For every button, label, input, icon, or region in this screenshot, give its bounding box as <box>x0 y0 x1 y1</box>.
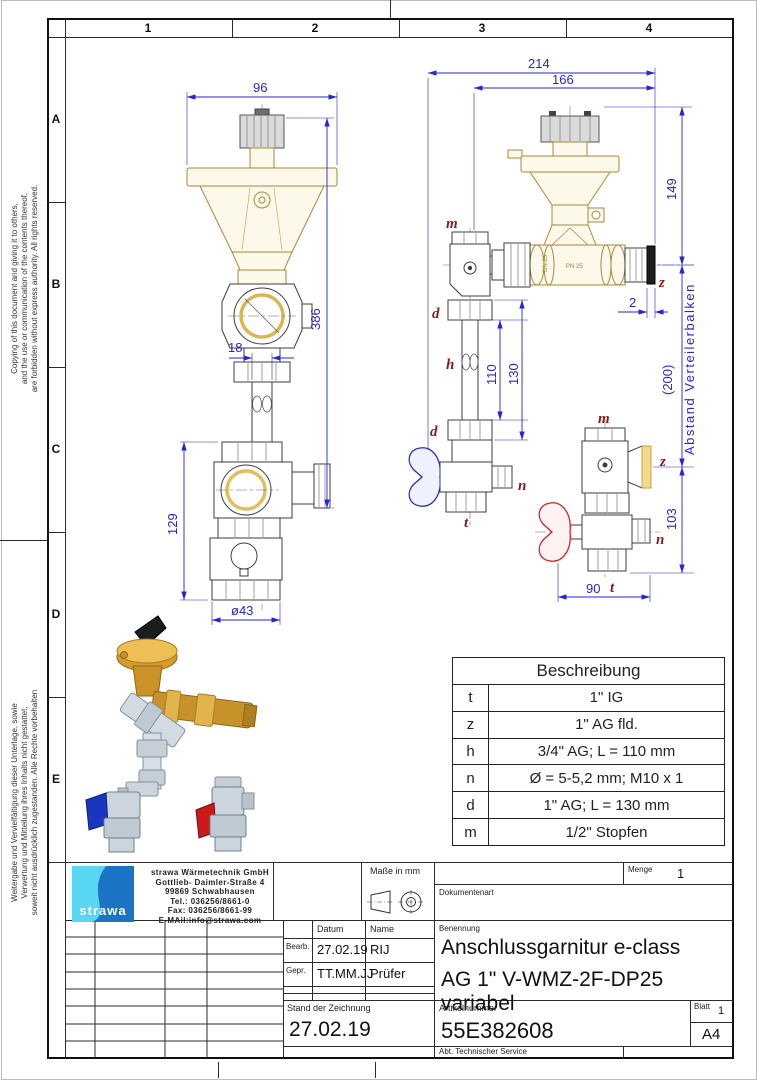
abt-value: Abt. Technischer Service <box>439 1047 527 1056</box>
table-row: d 1" AG; L = 130 mm <box>453 791 724 818</box>
name-header: Name <box>370 924 394 934</box>
table-row: z 1" AG fld. <box>453 711 724 738</box>
table-row: m 1/2" Stopfen <box>453 818 724 845</box>
header-divider <box>566 18 567 37</box>
units-label: Maße in mm <box>370 866 420 876</box>
bearb-date: 27.02.19 <box>317 942 368 957</box>
company-name: strawa Wärmetechnik GmbH <box>141 868 279 878</box>
gepr-label: Gepr. <box>286 966 306 975</box>
logo-text: strawa <box>79 903 126 918</box>
header-divider <box>399 18 400 37</box>
row-key: d <box>453 792 489 818</box>
strawa-logo: strawa <box>72 866 134 922</box>
blatt-value: 1 <box>718 1005 724 1017</box>
copyright-note-en: Copying of this document and giving it t… <box>8 37 42 540</box>
copyright-line: Weitergabe und Vervielfältigung dieser U… <box>10 545 20 1060</box>
table-row: t 1" IG <box>453 684 724 711</box>
row-letter: C <box>52 442 61 456</box>
drawing-sheet: 1 2 3 4 A B C D E Copying of this docume… <box>0 0 757 1080</box>
company-tel: Tel.: 036256/8661-0 <box>141 897 279 907</box>
row-divider <box>47 202 65 203</box>
format-value: A4 <box>702 1026 720 1043</box>
company-address: strawa Wärmetechnik GmbH Gottlieb- Daiml… <box>141 868 279 926</box>
row-divider <box>47 532 65 533</box>
header-bottom-line <box>47 37 733 38</box>
row-key: n <box>453 765 489 791</box>
row-key: h <box>453 739 489 765</box>
row-value: 1/2" Stopfen <box>489 819 724 845</box>
stand-value: 27.02.19 <box>289 1018 371 1042</box>
company-fax: Fax: 036256/8661-99 <box>141 906 279 916</box>
copyright-line: Copying of this document and giving it t… <box>10 37 20 540</box>
title-block: strawa strawa Wärmetechnik GmbH Gottlieb… <box>65 862 733 1058</box>
row-letter: B <box>52 277 61 291</box>
frame-top <box>47 18 733 20</box>
copyright-line: are forbidden without express authority.… <box>30 37 40 540</box>
row-value: 1" AG; L = 130 mm <box>489 792 724 818</box>
row-value: Ø = 5-5,2 mm; M10 x 1 <box>489 765 724 791</box>
column-number: 4 <box>646 21 653 35</box>
company-email: E-MAil:info@strawa.com <box>141 916 279 926</box>
bottom-fold-mark <box>375 1062 376 1078</box>
column-number: 1 <box>145 21 152 35</box>
copyright-line: and the use or communication of the cont… <box>20 37 30 540</box>
menge-label: Menge <box>628 865 652 874</box>
row-key: m <box>453 819 489 845</box>
column-number: 2 <box>312 21 319 35</box>
bottom-fold-mark <box>218 1062 219 1078</box>
row-key: z <box>453 712 489 738</box>
company-street: Gottlieb- Daimler-Straße 4 <box>141 878 279 888</box>
row-value: 1" IG <box>489 685 724 711</box>
blatt-label: Blatt <box>694 1002 710 1011</box>
revision-grid <box>65 920 283 1058</box>
column-number: 3 <box>479 21 486 35</box>
bearb-name: RIJ <box>370 942 390 957</box>
datum-header: Datum <box>317 924 344 934</box>
benennung-line1: Anschlussgarnitur e-class <box>441 936 680 960</box>
gepr-date: TT.MM.JJ <box>317 966 373 981</box>
left-center-mark <box>0 540 47 541</box>
artikel-value: 55E382608 <box>441 1018 554 1044</box>
company-city: 99869 Schwabhausen <box>141 887 279 897</box>
row-letter: E <box>52 772 60 786</box>
dokumentenart-label: Dokumentenart <box>439 888 494 897</box>
frame-left <box>47 18 49 1059</box>
top-center-mark <box>390 0 391 18</box>
copyright-line: soweit nicht ausdrücklich zugestanden. A… <box>30 545 40 1060</box>
stand-label: Stand der Zeichnung <box>287 1003 371 1013</box>
copyright-line: Verwertung und Mitteilung ihres Inhalts … <box>20 545 30 1060</box>
table-row: h 3/4" AG; L = 110 mm <box>453 738 724 765</box>
row-divider <box>47 367 65 368</box>
copyright-note-de: Weitergabe und Vervielfältigung dieser U… <box>8 545 42 1060</box>
row-value: 3/4" AG; L = 110 mm <box>489 739 724 765</box>
row-letter: A <box>52 112 61 126</box>
row-value: 1" AG fld. <box>489 712 724 738</box>
row-letter: D <box>52 607 61 621</box>
description-table: Beschreibung t 1" IG z 1" AG fld. h 3/4"… <box>452 657 725 846</box>
menge-value: 1 <box>677 866 684 881</box>
bearb-label: Bearb. <box>286 942 310 951</box>
row-divider <box>47 697 65 698</box>
artikel-label: Artikelnummer <box>439 1003 497 1013</box>
description-table-title: Beschreibung <box>453 658 724 684</box>
gepr-name: Prüfer <box>370 966 405 981</box>
projection-symbol-icon <box>366 889 430 915</box>
row-key: t <box>453 685 489 711</box>
header-divider <box>232 18 233 37</box>
benennung-label: Benennung <box>439 924 480 933</box>
table-row: n Ø = 5-5,2 mm; M10 x 1 <box>453 764 724 791</box>
